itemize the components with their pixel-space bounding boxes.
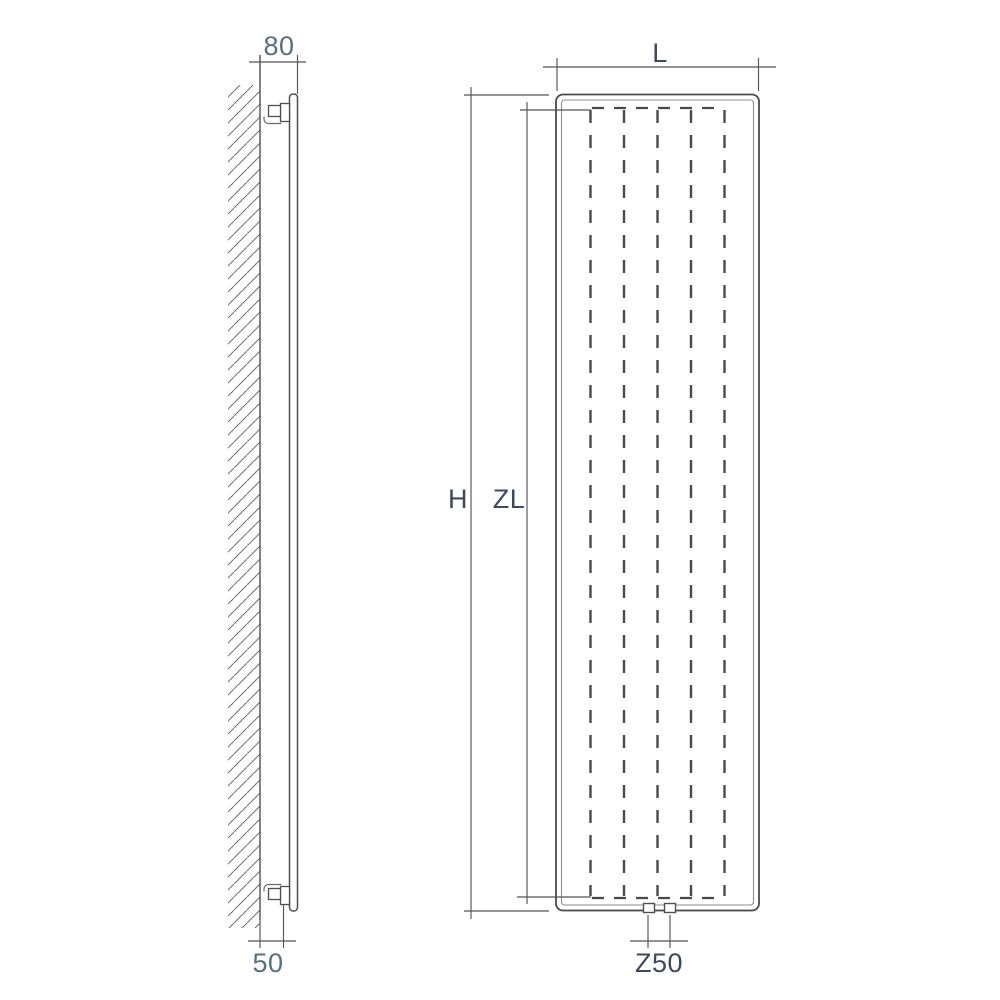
bottom-mounting-bracket bbox=[264, 885, 290, 905]
radiator-panel-profile bbox=[290, 94, 298, 911]
side-view: 80 50 bbox=[228, 31, 306, 978]
connection-valve-right bbox=[665, 904, 676, 913]
wall-section bbox=[228, 55, 260, 928]
bracket-hook bbox=[264, 117, 282, 124]
dimension-label-50: 50 bbox=[252, 948, 283, 978]
bracket-block bbox=[269, 106, 281, 117]
dimension-label-H: H bbox=[448, 484, 468, 514]
dimension-label-ZL: ZL bbox=[493, 484, 526, 514]
bracket-arm bbox=[281, 887, 290, 905]
bracket-block bbox=[269, 889, 281, 900]
dimension-connections-Z50: Z50 bbox=[630, 915, 688, 978]
dimension-label-80: 80 bbox=[263, 31, 294, 61]
radiator-dimension-drawing: 80 50 bbox=[0, 0, 1000, 1000]
dimension-depth-80: 80 bbox=[249, 31, 306, 94]
wall-hatching bbox=[228, 85, 260, 928]
dimension-label-Z50: Z50 bbox=[635, 948, 683, 978]
connection-valve-left bbox=[644, 904, 655, 913]
bracket-arm bbox=[281, 104, 290, 122]
dimension-width-L: L bbox=[543, 38, 776, 91]
front-view: L H ZL Z50 bbox=[448, 38, 776, 978]
top-mounting-bracket bbox=[264, 104, 290, 124]
dimension-label-L: L bbox=[652, 38, 668, 68]
drawing-svg: 80 50 bbox=[0, 0, 1000, 1000]
